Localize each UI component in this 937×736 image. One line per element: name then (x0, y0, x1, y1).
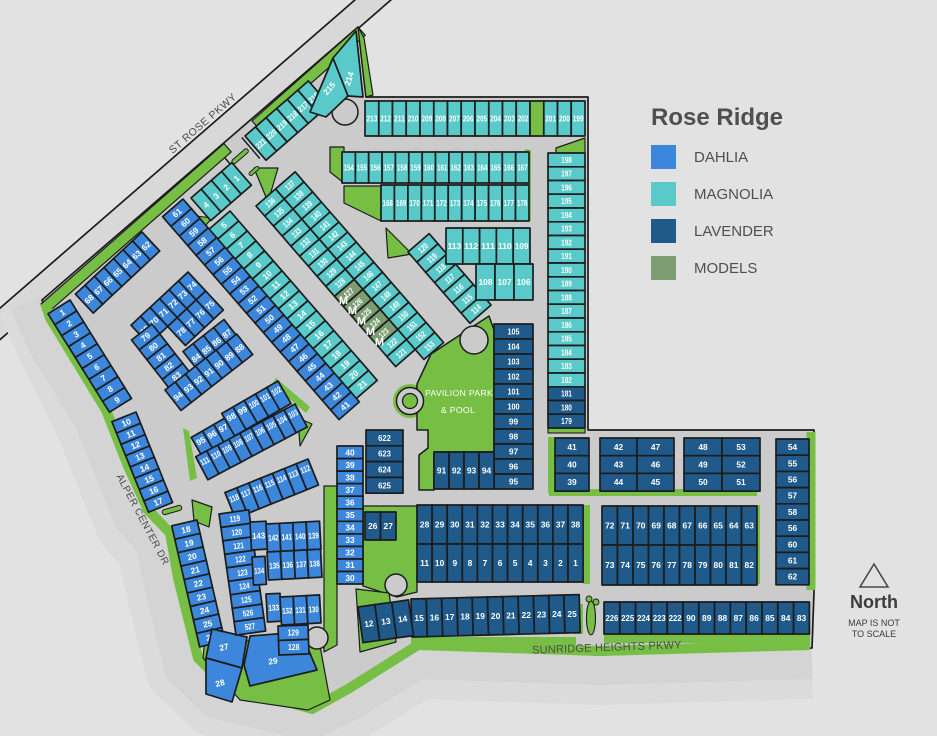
svg-text:37: 37 (556, 520, 566, 530)
svg-text:188: 188 (561, 292, 572, 302)
svg-text:29: 29 (435, 520, 445, 530)
svg-text:159: 159 (410, 163, 421, 173)
svg-text:M: M (357, 316, 366, 328)
svg-text:3: 3 (543, 558, 548, 568)
svg-text:160: 160 (424, 163, 435, 173)
svg-text:90: 90 (686, 613, 696, 623)
svg-text:42: 42 (614, 442, 624, 452)
svg-text:62: 62 (788, 572, 798, 582)
svg-text:121: 121 (233, 540, 245, 551)
svg-text:623: 623 (378, 449, 391, 459)
svg-text:201: 201 (545, 114, 556, 124)
svg-text:83: 83 (797, 613, 807, 623)
svg-text:91: 91 (437, 466, 447, 476)
svg-text:104: 104 (508, 342, 520, 352)
svg-text:162: 162 (450, 163, 461, 173)
svg-text:M: M (375, 337, 384, 349)
svg-text:21: 21 (506, 610, 516, 620)
svg-text:35: 35 (526, 520, 536, 530)
svg-text:102: 102 (508, 372, 520, 382)
svg-text:189: 189 (561, 279, 572, 289)
svg-text:169: 169 (396, 198, 407, 208)
svg-text:50: 50 (698, 477, 708, 487)
svg-text:North: North (850, 592, 898, 612)
svg-text:86: 86 (749, 613, 759, 623)
svg-text:171: 171 (423, 198, 434, 208)
svg-text:67: 67 (683, 521, 693, 531)
svg-text:183: 183 (561, 361, 572, 371)
svg-text:154: 154 (344, 163, 355, 173)
svg-text:93: 93 (467, 466, 477, 476)
svg-text:84: 84 (781, 613, 791, 623)
svg-text:74: 74 (621, 560, 631, 570)
svg-text:111: 111 (481, 241, 495, 251)
svg-text:5: 5 (513, 558, 518, 568)
svg-text:75: 75 (636, 560, 646, 570)
svg-text:34: 34 (345, 523, 355, 533)
svg-text:72: 72 (605, 521, 615, 531)
svg-text:225: 225 (621, 613, 634, 623)
svg-text:175: 175 (477, 198, 488, 208)
svg-text:527: 527 (244, 621, 256, 632)
svg-text:19: 19 (476, 611, 486, 621)
svg-text:193: 193 (561, 224, 572, 234)
svg-text:37: 37 (345, 485, 355, 495)
svg-text:165: 165 (490, 163, 501, 173)
svg-text:26: 26 (368, 521, 378, 531)
svg-text:22: 22 (522, 610, 532, 620)
svg-text:168: 168 (383, 198, 394, 208)
svg-text:624: 624 (378, 465, 391, 475)
svg-text:12: 12 (364, 618, 375, 629)
svg-text:113: 113 (448, 241, 462, 251)
svg-text:38: 38 (345, 472, 355, 482)
svg-text:58: 58 (788, 507, 798, 517)
svg-text:46: 46 (651, 460, 661, 470)
svg-text:130: 130 (308, 604, 319, 615)
svg-text:212: 212 (380, 114, 391, 124)
svg-text:35: 35 (345, 510, 355, 520)
svg-text:77: 77 (667, 560, 677, 570)
svg-text:184: 184 (561, 347, 572, 357)
svg-text:82: 82 (745, 560, 755, 570)
svg-text:66: 66 (698, 521, 708, 531)
svg-text:80: 80 (714, 560, 724, 570)
svg-text:32: 32 (480, 520, 490, 530)
svg-text:45: 45 (651, 477, 661, 487)
svg-text:30: 30 (450, 520, 460, 530)
svg-text:205: 205 (477, 114, 488, 124)
svg-text:141: 141 (281, 532, 292, 543)
svg-text:39: 39 (567, 477, 577, 487)
svg-text:16: 16 (430, 612, 440, 622)
svg-text:139: 139 (308, 530, 319, 541)
svg-text:18: 18 (460, 612, 470, 622)
svg-text:211: 211 (394, 114, 405, 124)
svg-text:222: 222 (669, 613, 682, 623)
svg-text:13: 13 (380, 616, 391, 627)
svg-text:60: 60 (788, 539, 798, 549)
svg-text:202: 202 (518, 114, 529, 124)
svg-text:73: 73 (605, 560, 615, 570)
svg-text:140: 140 (295, 531, 306, 542)
svg-text:89: 89 (702, 613, 712, 623)
svg-text:138: 138 (309, 558, 320, 569)
svg-text:79: 79 (698, 560, 708, 570)
svg-text:9: 9 (452, 558, 457, 568)
svg-text:39: 39 (345, 460, 355, 470)
svg-text:36: 36 (541, 520, 551, 530)
svg-text:MODELS: MODELS (694, 260, 757, 277)
svg-text:101: 101 (508, 387, 520, 397)
svg-text:2: 2 (558, 558, 563, 568)
svg-text:176: 176 (490, 198, 501, 208)
svg-text:119: 119 (229, 513, 241, 524)
svg-text:11: 11 (420, 558, 429, 568)
svg-text:133: 133 (268, 602, 280, 613)
svg-text:1: 1 (573, 558, 578, 568)
svg-text:88: 88 (718, 613, 728, 623)
svg-text:186: 186 (561, 320, 572, 330)
svg-text:56: 56 (788, 523, 798, 533)
svg-text:110: 110 (498, 241, 512, 251)
svg-text:7: 7 (483, 558, 488, 568)
svg-text:198: 198 (561, 155, 572, 165)
svg-text:135: 135 (269, 560, 280, 571)
svg-text:105: 105 (508, 327, 520, 337)
svg-text:96: 96 (509, 462, 519, 472)
svg-text:223: 223 (653, 613, 666, 623)
svg-text:157: 157 (384, 163, 395, 173)
svg-text:155: 155 (357, 163, 368, 173)
svg-text:69: 69 (652, 521, 662, 531)
svg-text:LAVENDER: LAVENDER (694, 223, 774, 240)
svg-text:81: 81 (729, 560, 739, 570)
svg-text:172: 172 (436, 198, 447, 208)
svg-text:PAVILION PARK: PAVILION PARK (425, 388, 493, 398)
svg-text:123: 123 (236, 567, 248, 578)
svg-text:137: 137 (296, 559, 307, 570)
svg-text:195: 195 (561, 196, 572, 206)
svg-text:DAHLIA: DAHLIA (694, 149, 748, 166)
svg-text:203: 203 (504, 114, 515, 124)
svg-text:226: 226 (606, 613, 619, 623)
svg-text:178: 178 (517, 198, 528, 208)
svg-text:70: 70 (636, 521, 646, 531)
svg-text:87: 87 (734, 613, 744, 623)
svg-text:32: 32 (345, 548, 355, 558)
svg-text:34: 34 (510, 520, 520, 530)
svg-text:MAGNOLIA: MAGNOLIA (694, 186, 773, 203)
svg-text:MAP IS NOT: MAP IS NOT (848, 618, 900, 628)
svg-text:30: 30 (345, 573, 355, 583)
svg-text:24: 24 (552, 609, 562, 619)
svg-text:25: 25 (567, 609, 577, 619)
svg-text:103: 103 (508, 357, 520, 367)
svg-text:129: 129 (287, 628, 299, 638)
svg-text:10: 10 (435, 558, 445, 568)
svg-text:40: 40 (345, 447, 355, 457)
svg-text:109: 109 (515, 241, 529, 251)
svg-text:29: 29 (268, 655, 279, 666)
svg-text:120: 120 (231, 526, 243, 537)
svg-text:64: 64 (729, 521, 739, 531)
svg-text:125: 125 (240, 594, 252, 605)
svg-text:8: 8 (468, 558, 473, 568)
svg-text:94: 94 (482, 466, 492, 476)
svg-text:M: M (339, 295, 348, 307)
svg-text:27: 27 (384, 521, 394, 531)
svg-text:51: 51 (736, 477, 746, 487)
svg-text:209: 209 (422, 114, 433, 124)
svg-text:108: 108 (479, 277, 493, 287)
svg-text:131: 131 (295, 605, 306, 616)
svg-text:43: 43 (614, 460, 624, 470)
svg-text:17: 17 (445, 612, 455, 622)
svg-text:31: 31 (465, 520, 475, 530)
svg-text:213: 213 (367, 114, 378, 124)
svg-text:M: M (366, 326, 375, 338)
svg-text:53: 53 (736, 442, 746, 452)
svg-text:44: 44 (614, 477, 624, 487)
svg-text:181: 181 (561, 389, 572, 399)
svg-text:625: 625 (378, 480, 391, 490)
svg-text:164: 164 (477, 163, 488, 173)
svg-text:56: 56 (788, 475, 798, 485)
svg-text:38: 38 (571, 520, 581, 530)
svg-text:163: 163 (464, 163, 475, 173)
svg-text:20: 20 (491, 611, 501, 621)
svg-text:170: 170 (409, 198, 420, 208)
svg-text:190: 190 (561, 265, 572, 275)
svg-text:92: 92 (452, 466, 462, 476)
svg-text:224: 224 (637, 613, 650, 623)
svg-text:187: 187 (561, 306, 572, 316)
svg-text:100: 100 (508, 402, 520, 412)
svg-text:192: 192 (561, 237, 572, 247)
svg-text:191: 191 (561, 251, 572, 261)
svg-text:179: 179 (561, 416, 572, 426)
svg-text:156: 156 (370, 163, 381, 173)
svg-text:15: 15 (414, 613, 424, 623)
svg-text:185: 185 (561, 334, 572, 344)
svg-text:& POOL: & POOL (441, 405, 475, 415)
svg-text:204: 204 (490, 114, 501, 124)
svg-text:57: 57 (788, 491, 798, 501)
svg-text:124: 124 (238, 580, 250, 591)
svg-text:52: 52 (736, 460, 746, 470)
svg-text:142: 142 (268, 532, 279, 543)
svg-text:199: 199 (573, 114, 584, 124)
svg-text:167: 167 (517, 163, 528, 173)
svg-text:182: 182 (561, 375, 572, 385)
svg-text:207: 207 (449, 114, 460, 124)
svg-text:31: 31 (345, 560, 355, 570)
svg-text:95: 95 (509, 477, 519, 487)
svg-text:208: 208 (435, 114, 446, 124)
svg-text:48: 48 (698, 442, 708, 452)
svg-text:99: 99 (509, 417, 519, 427)
svg-text:98: 98 (509, 432, 519, 442)
svg-text:622: 622 (378, 433, 391, 443)
svg-text:Rose Ridge: Rose Ridge (651, 104, 783, 131)
svg-text:174: 174 (463, 198, 474, 208)
svg-text:M: M (348, 305, 357, 317)
svg-text:200: 200 (559, 114, 570, 124)
svg-text:36: 36 (345, 498, 355, 508)
svg-text:128: 128 (288, 642, 300, 652)
svg-text:TO SCALE: TO SCALE (852, 629, 896, 639)
svg-text:47: 47 (651, 442, 661, 452)
svg-text:28: 28 (420, 520, 430, 530)
svg-text:40: 40 (567, 460, 577, 470)
svg-text:173: 173 (450, 198, 461, 208)
svg-text:166: 166 (504, 163, 515, 173)
svg-text:177: 177 (504, 198, 515, 208)
svg-text:78: 78 (683, 560, 693, 570)
svg-text:61: 61 (788, 556, 798, 566)
svg-text:4: 4 (528, 558, 533, 568)
svg-text:41: 41 (567, 442, 577, 452)
svg-text:206: 206 (463, 114, 474, 124)
svg-text:134: 134 (254, 565, 265, 576)
svg-text:76: 76 (652, 560, 662, 570)
svg-text:65: 65 (714, 521, 724, 531)
svg-text:197: 197 (561, 169, 572, 179)
svg-text:85: 85 (765, 613, 775, 623)
svg-text:14: 14 (397, 613, 408, 624)
svg-text:196: 196 (561, 182, 572, 192)
svg-text:132: 132 (282, 605, 293, 616)
svg-text:158: 158 (397, 163, 408, 173)
svg-text:49: 49 (698, 460, 708, 470)
svg-text:194: 194 (561, 210, 572, 220)
svg-text:68: 68 (667, 521, 677, 531)
svg-text:112: 112 (464, 241, 478, 251)
svg-text:71: 71 (621, 521, 631, 531)
svg-text:33: 33 (345, 535, 355, 545)
svg-text:136: 136 (282, 560, 293, 571)
svg-text:33: 33 (495, 520, 505, 530)
svg-text:210: 210 (408, 114, 419, 124)
svg-text:23: 23 (537, 610, 547, 620)
svg-text:161: 161 (437, 163, 448, 173)
svg-text:122: 122 (235, 553, 247, 564)
svg-text:180: 180 (561, 402, 572, 412)
svg-text:6: 6 (498, 558, 503, 568)
svg-text:526: 526 (242, 607, 254, 618)
svg-text:143: 143 (252, 530, 266, 541)
svg-text:63: 63 (745, 521, 755, 531)
svg-text:54: 54 (788, 442, 798, 452)
svg-text:97: 97 (509, 447, 519, 457)
svg-text:106: 106 (517, 277, 531, 287)
svg-text:55: 55 (788, 458, 798, 468)
svg-text:107: 107 (498, 277, 512, 287)
